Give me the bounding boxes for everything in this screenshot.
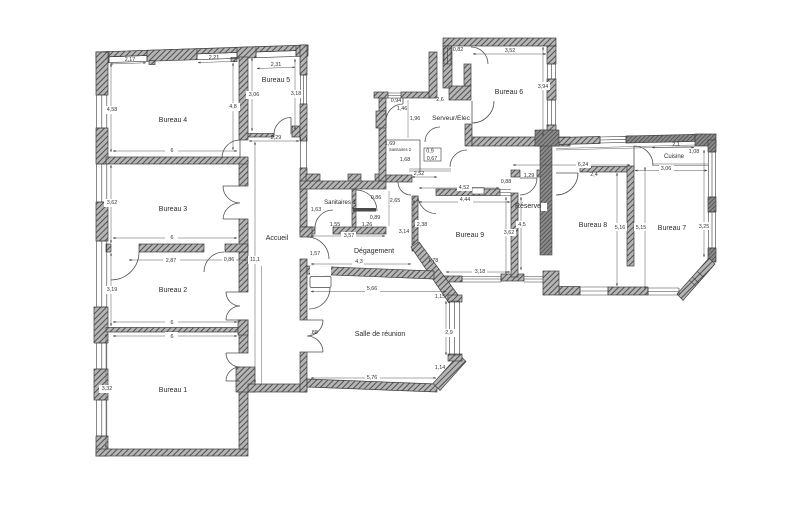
svg-text:3,52: 3,52 xyxy=(505,48,516,54)
svg-text:0,88: 0,88 xyxy=(501,179,512,185)
svg-text:11,1: 11,1 xyxy=(250,257,260,263)
svg-text:1,14: 1,14 xyxy=(435,365,446,371)
svg-text:3,25: 3,25 xyxy=(699,224,710,230)
svg-text:0,9: 0,9 xyxy=(426,149,434,155)
svg-text:2,65: 2,65 xyxy=(390,198,401,204)
svg-text:1,68: 1,68 xyxy=(400,157,411,163)
svg-text:2,31: 2,31 xyxy=(271,62,282,68)
svg-text:0,67: 0,67 xyxy=(427,156,438,162)
svg-text:1,29: 1,29 xyxy=(524,173,535,179)
svg-text:Bureau 1: Bureau 1 xyxy=(159,387,188,394)
svg-text:Dégagement: Dégagement xyxy=(354,248,394,255)
svg-text:5,76: 5,76 xyxy=(367,375,378,381)
svg-text:6: 6 xyxy=(171,334,174,340)
svg-text:5,15: 5,15 xyxy=(636,225,647,231)
svg-text:Bureau 3: Bureau 3 xyxy=(159,206,188,213)
svg-text:3,57: 3,57 xyxy=(344,233,355,239)
svg-text:2,9: 2,9 xyxy=(445,330,453,336)
svg-text:4,8: 4,8 xyxy=(229,104,237,110)
svg-text:2,1: 2,1 xyxy=(672,142,680,148)
svg-text:5,16: 5,16 xyxy=(615,225,626,231)
svg-text:2,29: 2,29 xyxy=(271,135,282,141)
svg-text:0,94: 0,94 xyxy=(391,98,402,104)
svg-text:3,94: 3,94 xyxy=(538,84,549,90)
svg-text:2,38: 2,38 xyxy=(417,222,428,228)
svg-text:1,55: 1,55 xyxy=(330,222,341,228)
svg-text:,88: ,88 xyxy=(310,330,318,336)
svg-text:Bureau 8: Bureau 8 xyxy=(579,222,608,229)
svg-text:2,4: 2,4 xyxy=(590,172,598,178)
svg-text:Serveur/Elec: Serveur/Elec xyxy=(432,115,470,122)
svg-text:3,06: 3,06 xyxy=(249,92,260,98)
svg-text:1,63: 1,63 xyxy=(311,207,322,213)
svg-text:1,15: 1,15 xyxy=(435,294,446,300)
svg-text:3,14: 3,14 xyxy=(399,229,410,235)
svg-text:4,44: 4,44 xyxy=(460,197,471,203)
svg-text:Bureau 9: Bureau 9 xyxy=(456,232,485,239)
svg-text:2,52: 2,52 xyxy=(414,171,425,177)
svg-text:Bureau 6: Bureau 6 xyxy=(495,89,524,96)
svg-text:Bureau 4: Bureau 4 xyxy=(159,117,188,124)
svg-text:Cuisine: Cuisine xyxy=(664,154,685,160)
svg-text:3,18: 3,18 xyxy=(475,269,486,275)
svg-text:4,58: 4,58 xyxy=(107,107,118,113)
svg-text:1,26: 1,26 xyxy=(362,222,373,228)
svg-text:6: 6 xyxy=(171,148,174,154)
svg-text:1,46: 1,46 xyxy=(397,106,408,112)
svg-text:5,66: 5,66 xyxy=(367,286,378,292)
svg-text:Bureau 2: Bureau 2 xyxy=(159,287,188,294)
svg-text:3,32: 3,32 xyxy=(102,386,113,392)
svg-text:Bureau 7: Bureau 7 xyxy=(658,225,687,232)
svg-text:3,19: 3,19 xyxy=(107,287,118,293)
svg-text:Bureau 5: Bureau 5 xyxy=(262,77,291,84)
svg-text:1,08: 1,08 xyxy=(689,149,700,155)
svg-text:3,62: 3,62 xyxy=(504,230,515,236)
svg-text:6: 6 xyxy=(171,235,174,241)
svg-text:4,3: 4,3 xyxy=(355,259,363,265)
svg-text:1,78: 1,78 xyxy=(428,258,439,264)
svg-text:3,06: 3,06 xyxy=(661,166,672,172)
svg-text:6: 6 xyxy=(171,320,174,326)
svg-text:0,89: 0,89 xyxy=(370,215,381,221)
svg-text:1,96: 1,96 xyxy=(410,116,421,122)
svg-text:3,18: 3,18 xyxy=(291,91,302,97)
svg-text:0,82: 0,82 xyxy=(453,47,464,53)
svg-text:2,21: 2,21 xyxy=(209,55,220,61)
svg-text:2,87: 2,87 xyxy=(166,258,177,264)
svg-text:4,5: 4,5 xyxy=(518,222,526,228)
svg-text:4,52: 4,52 xyxy=(459,185,470,191)
svg-text:Sanitaires 1: Sanitaires 1 xyxy=(324,200,356,206)
svg-text:0,86: 0,86 xyxy=(371,195,382,201)
svg-text:3,62: 3,62 xyxy=(107,200,118,206)
svg-text:Salle de réunion: Salle de réunion xyxy=(355,331,406,338)
svg-text:Accueil: Accueil xyxy=(266,235,289,242)
svg-text:1,57: 1,57 xyxy=(310,251,321,257)
svg-text:Réserve: Réserve xyxy=(515,203,541,210)
svg-text:Sanitaires 2: Sanitaires 2 xyxy=(389,147,412,152)
svg-text:6,24: 6,24 xyxy=(578,162,589,168)
svg-text:2,17: 2,17 xyxy=(125,57,136,63)
svg-text:2,6: 2,6 xyxy=(436,97,444,103)
svg-text:0,86: 0,86 xyxy=(224,257,235,263)
